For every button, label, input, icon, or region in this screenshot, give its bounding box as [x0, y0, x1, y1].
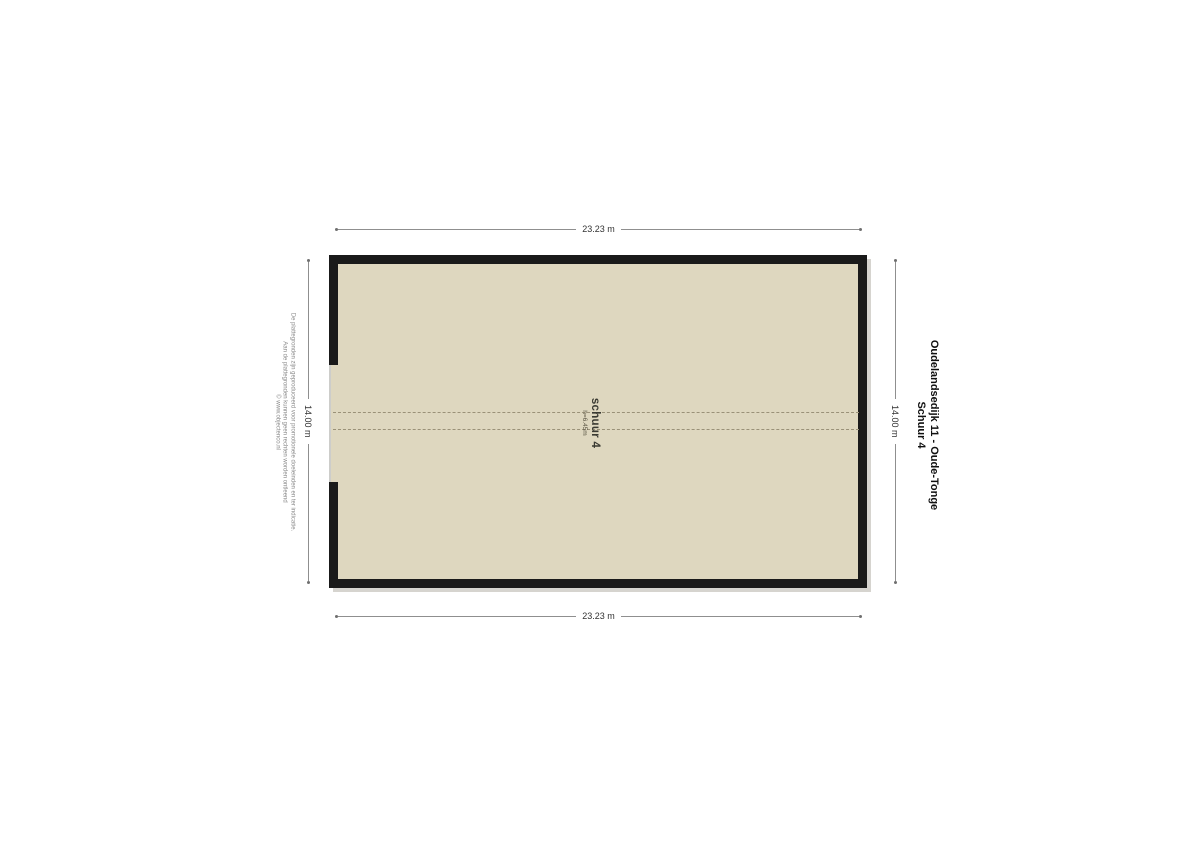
- dimension-right-label: 14.00 m: [890, 399, 900, 444]
- project-floor-text: Schuur 4: [914, 340, 927, 510]
- dimension-right: 14.00 m: [888, 259, 902, 584]
- dimension-top: 23.23 m: [335, 223, 862, 235]
- disclaimer: De plattegronden zijn geproduceerd voor …: [273, 313, 296, 531]
- dimension-end-marker: [307, 581, 310, 584]
- dimension-line-segment: [895, 444, 896, 581]
- dimension-top-label: 23.23 m: [576, 224, 621, 234]
- dimension-left-label: 14.00 m: [303, 399, 313, 444]
- disclaimer-line-3: © www.objectenco.nl: [273, 313, 281, 531]
- dimension-end-marker: [859, 228, 862, 231]
- dimension-line-segment: [338, 229, 576, 230]
- dimension-bottom-label: 23.23 m: [576, 611, 621, 621]
- disclaimer-line-1: De plattegronden zijn geproduceerd voor …: [288, 313, 296, 531]
- dimension-bottom: 23.23 m: [335, 610, 862, 622]
- dimension-line-segment: [895, 262, 896, 399]
- room-height-text: h=6.45m: [581, 398, 588, 448]
- room-label: schuur 4 h=6.45m: [581, 398, 601, 448]
- dimension-line-segment: [621, 229, 859, 230]
- floorplan-canvas: schuur 4 h=6.45m 23.23 m 23.23 m 14.00 m…: [0, 0, 1199, 848]
- project-title: Oudelandsedijk 11 - Oude-Tonge Schuur 4: [914, 340, 940, 510]
- dimension-line-segment: [621, 616, 859, 617]
- disclaimer-line-2: Aan de plattegronden kunnen geen rechten…: [280, 313, 288, 531]
- dimension-left: 14.00 m: [301, 259, 315, 584]
- dimension-line-segment: [308, 444, 309, 581]
- dimension-line-segment: [308, 262, 309, 399]
- dimension-line-segment: [338, 616, 576, 617]
- project-address-text: Oudelandsedijk 11 - Oude-Tonge: [927, 340, 940, 510]
- dimension-end-marker: [894, 581, 897, 584]
- room-name-text: schuur 4: [589, 398, 601, 448]
- wall-opening: [329, 365, 338, 482]
- dimension-end-marker: [859, 615, 862, 618]
